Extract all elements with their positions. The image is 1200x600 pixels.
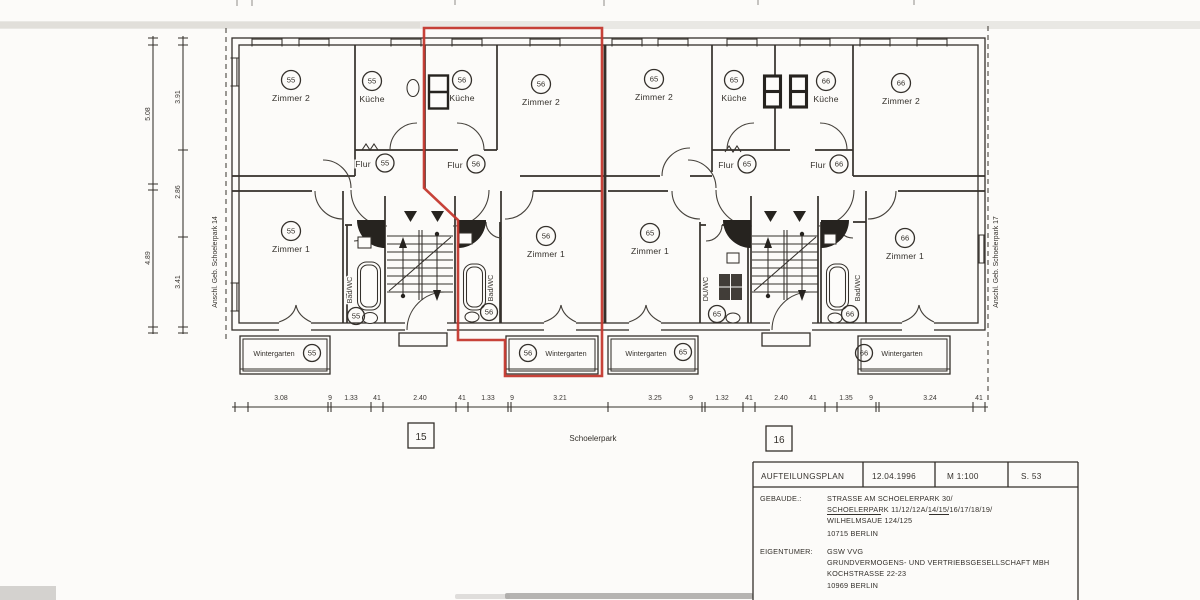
svg-text:55: 55 xyxy=(368,77,376,86)
window-symbol xyxy=(252,38,282,47)
svg-text:Bad/WC: Bad/WC xyxy=(853,275,862,302)
window-symbol xyxy=(612,38,642,47)
svg-text:Flur: Flur xyxy=(810,160,826,170)
room-label-flur-55: Flur 55 xyxy=(355,154,394,172)
svg-text:3.08: 3.08 xyxy=(274,395,288,402)
svg-text:Zimmer 1: Zimmer 1 xyxy=(272,244,310,254)
svg-text:41: 41 xyxy=(745,395,753,402)
svg-text:56: 56 xyxy=(472,160,480,169)
svg-text:55: 55 xyxy=(287,227,295,236)
owner-line-3: KOCHSTRASSE 22-23 xyxy=(827,569,906,578)
svg-text:Zimmer 1: Zimmer 1 xyxy=(527,249,565,259)
svg-text:Bad/WC: Bad/WC xyxy=(345,277,354,304)
building-label: GEBAUDE.: xyxy=(760,494,802,503)
entrance-marker-15: 15 xyxy=(408,423,434,448)
floor-plan-drawing: Anschl. Geb. Schoelerpark 14 Anschl. Geb… xyxy=(0,0,1200,600)
svg-text:56: 56 xyxy=(458,76,466,85)
svg-text:66: 66 xyxy=(822,77,830,86)
anschluss-left-label: Anschl. Geb. Schoelerpark 14 xyxy=(212,216,219,308)
svg-text:66: 66 xyxy=(835,160,843,169)
bathroom-65-fixtures xyxy=(719,253,742,323)
svg-text:55: 55 xyxy=(287,76,295,85)
toilet-symbol xyxy=(465,312,479,322)
svg-text:56: 56 xyxy=(542,232,550,241)
direction-triangle xyxy=(764,211,777,222)
svg-text:66: 66 xyxy=(860,349,868,358)
svg-text:3.41: 3.41 xyxy=(175,275,182,289)
svg-text:Zimmer 2: Zimmer 2 xyxy=(272,93,310,103)
svg-text:41: 41 xyxy=(458,395,466,402)
window-symbol xyxy=(299,38,329,47)
window-symbol xyxy=(860,38,890,47)
direction-triangle xyxy=(431,211,444,222)
svg-text:65: 65 xyxy=(730,76,738,85)
svg-text:3.25: 3.25 xyxy=(648,395,662,402)
svg-text:56: 56 xyxy=(485,308,493,317)
title-block-plan-type: AUFTEILUNGSPLAN xyxy=(761,472,844,481)
property-lines xyxy=(226,26,988,404)
svg-text:Zimmer 2: Zimmer 2 xyxy=(635,92,673,102)
room-label-kueche-66: 66 Küche xyxy=(813,72,838,105)
entry-step xyxy=(762,333,810,346)
svg-text:2.40: 2.40 xyxy=(413,395,427,402)
svg-text:41: 41 xyxy=(809,395,817,402)
sink-symbol xyxy=(824,234,836,244)
room-label-zimmer2-55: 55 Zimmer 2 xyxy=(272,71,310,104)
room-label-zimmer2-65: 65 Zimmer 2 xyxy=(635,70,673,103)
wintergarten-structures xyxy=(240,336,950,374)
toilet-symbol xyxy=(828,313,842,323)
owner-line-1: GSW VVG xyxy=(827,547,863,556)
svg-text:Flur: Flur xyxy=(447,160,463,170)
svg-text:66: 66 xyxy=(901,234,909,243)
svg-text:9: 9 xyxy=(689,395,693,402)
room-label-wintergarten-66: 66 Wintergarten xyxy=(856,345,923,362)
svg-text:Zimmer 1: Zimmer 1 xyxy=(886,251,924,261)
sink-symbol xyxy=(727,253,739,263)
entrance-marker-16: 16 xyxy=(766,426,792,451)
window-symbol xyxy=(978,235,986,263)
svg-text:Zimmer 1: Zimmer 1 xyxy=(631,246,669,256)
svg-text:9: 9 xyxy=(869,395,873,402)
window-symbol xyxy=(727,38,757,47)
title-block-date: 12.04.1996 xyxy=(872,472,916,481)
svg-text:Zimmer 2: Zimmer 2 xyxy=(882,96,920,106)
window-symbol xyxy=(231,283,239,311)
svg-text:2.86: 2.86 xyxy=(175,185,182,199)
svg-text:Küche: Küche xyxy=(813,94,838,104)
svg-text:Küche: Küche xyxy=(359,94,384,104)
svg-text:65: 65 xyxy=(743,160,751,169)
svg-text:Wintergarten: Wintergarten xyxy=(545,349,586,358)
window-symbol xyxy=(530,38,560,47)
room-label-zimmer2-66: 66 Zimmer 2 xyxy=(882,74,920,107)
svg-text:66: 66 xyxy=(846,310,854,319)
direction-triangle xyxy=(793,211,806,222)
svg-text:Wintergarten: Wintergarten xyxy=(625,349,666,358)
sink-symbol xyxy=(459,233,472,244)
svg-text:1.33: 1.33 xyxy=(481,395,495,402)
svg-text:5.08: 5.08 xyxy=(145,107,152,121)
svg-text:15: 15 xyxy=(415,432,427,443)
owner-line-2: GRUNDVERMOGENS- UND VERTRIEBSGESELLSCHAF… xyxy=(827,558,1049,567)
dimension-left: 5.08 4.89 3.91 2.86 3.41 xyxy=(145,36,188,334)
room-label-kueche-55: 55 Küche xyxy=(359,72,384,105)
svg-text:Bad/WC: Bad/WC xyxy=(486,275,495,302)
svg-text:Wintergarten: Wintergarten xyxy=(881,349,922,358)
svg-text:1.33: 1.33 xyxy=(344,395,358,402)
window-symbol xyxy=(452,38,482,47)
svg-text:Wintergarten: Wintergarten xyxy=(253,349,294,358)
svg-text:Küche: Küche xyxy=(721,93,746,103)
svg-text:16: 16 xyxy=(773,435,785,446)
svg-text:Küche: Küche xyxy=(449,93,474,103)
title-block-scale: M 1:100 xyxy=(947,472,979,481)
room-label-zimmer1-66: 66 Zimmer 1 xyxy=(886,229,924,262)
sink-symbol xyxy=(358,237,371,248)
anschluss-right-label: Anschl. Geb. Schoelerpark 17 xyxy=(993,216,1000,308)
owner-label: EIGENTUMER: xyxy=(760,547,813,556)
svg-text:56: 56 xyxy=(537,80,545,89)
svg-text:Zimmer 2: Zimmer 2 xyxy=(522,97,560,107)
svg-text:4.89: 4.89 xyxy=(145,251,152,265)
svg-text:1.35: 1.35 xyxy=(839,395,853,402)
svg-text:65: 65 xyxy=(713,310,721,319)
scanned-floor-plan-page: Anschl. Geb. Schoelerpark 14 Anschl. Geb… xyxy=(0,0,1200,600)
room-label-kueche-65: 65 Küche xyxy=(721,71,746,104)
room-label-wintergarten-56: 56 Wintergarten xyxy=(520,345,587,362)
room-label-zimmer1-65: 65 Zimmer 1 xyxy=(631,224,669,257)
svg-text:DU/WC: DU/WC xyxy=(701,277,710,301)
building-line-2: SCHOELERPARK 11/12/12A/14/15/16/17/18/19… xyxy=(827,505,993,514)
dimension-bottom: 3.08 9 1.33 41 2.40 41 1.33 9 3.21 3.25 … xyxy=(232,395,988,412)
svg-text:1.32: 1.32 xyxy=(715,395,729,402)
owner-line-4: 10969 BERLIN xyxy=(827,581,878,590)
toilet-symbol xyxy=(726,313,740,323)
svg-text:9: 9 xyxy=(510,395,514,402)
window-symbol xyxy=(391,38,421,47)
title-block-sheet: S. 53 xyxy=(1021,472,1042,481)
svg-text:41: 41 xyxy=(373,395,381,402)
window-symbol xyxy=(917,38,947,47)
building-line-4: 10715 BERLIN xyxy=(827,529,878,538)
scan-artifacts xyxy=(0,0,1200,600)
room-label-flur-66: Flur 66 xyxy=(810,155,848,173)
building-line-1: STRASSE AM SCHOELERPARK 30/ xyxy=(827,494,953,503)
room-label-wintergarten-65: Wintergarten 65 xyxy=(625,344,691,361)
sink-symbol xyxy=(407,80,419,97)
bathroom-55-fixtures xyxy=(358,237,381,324)
room-label-flur-65: Flur 65 xyxy=(718,155,756,173)
svg-text:65: 65 xyxy=(679,348,687,357)
svg-text:66: 66 xyxy=(897,79,905,88)
room-label-kueche-56: 56 Küche xyxy=(449,71,474,104)
window-symbol xyxy=(800,38,830,47)
direction-triangle xyxy=(404,211,417,222)
svg-text:55: 55 xyxy=(352,312,360,321)
svg-text:9: 9 xyxy=(328,395,332,402)
svg-text:3.24: 3.24 xyxy=(923,395,937,402)
room-label-zimmer1-56: 56 Zimmer 1 xyxy=(527,227,565,260)
svg-text:3.91: 3.91 xyxy=(175,90,182,104)
window-symbol xyxy=(231,58,239,86)
room-label-zimmer1-55: 55 Zimmer 1 xyxy=(272,222,310,255)
svg-text:Flur: Flur xyxy=(355,159,371,169)
entry-step xyxy=(399,333,447,346)
chimney-symbols xyxy=(429,76,807,109)
svg-text:2.40: 2.40 xyxy=(774,395,788,402)
svg-text:3.21: 3.21 xyxy=(553,395,567,402)
svg-text:41: 41 xyxy=(975,395,983,402)
svg-text:Flur: Flur xyxy=(718,160,734,170)
street-label: Schoelerpark xyxy=(569,434,617,443)
svg-text:55: 55 xyxy=(381,159,389,168)
building-line-3: WILHELMSAUE 124/125 xyxy=(827,516,912,525)
svg-text:65: 65 xyxy=(650,75,658,84)
room-label-flur-56: Flur 56 xyxy=(447,155,485,173)
room-label-zimmer2-56: 56 Zimmer 2 xyxy=(522,75,560,108)
room-label-wintergarten-55: Wintergarten 55 xyxy=(253,345,320,362)
title-block: AUFTEILUNGSPLAN 12.04.1996 M 1:100 S. 53… xyxy=(753,462,1078,600)
window-symbol xyxy=(658,38,688,47)
svg-text:56: 56 xyxy=(524,349,532,358)
svg-text:55: 55 xyxy=(308,349,316,358)
svg-text:65: 65 xyxy=(646,229,654,238)
